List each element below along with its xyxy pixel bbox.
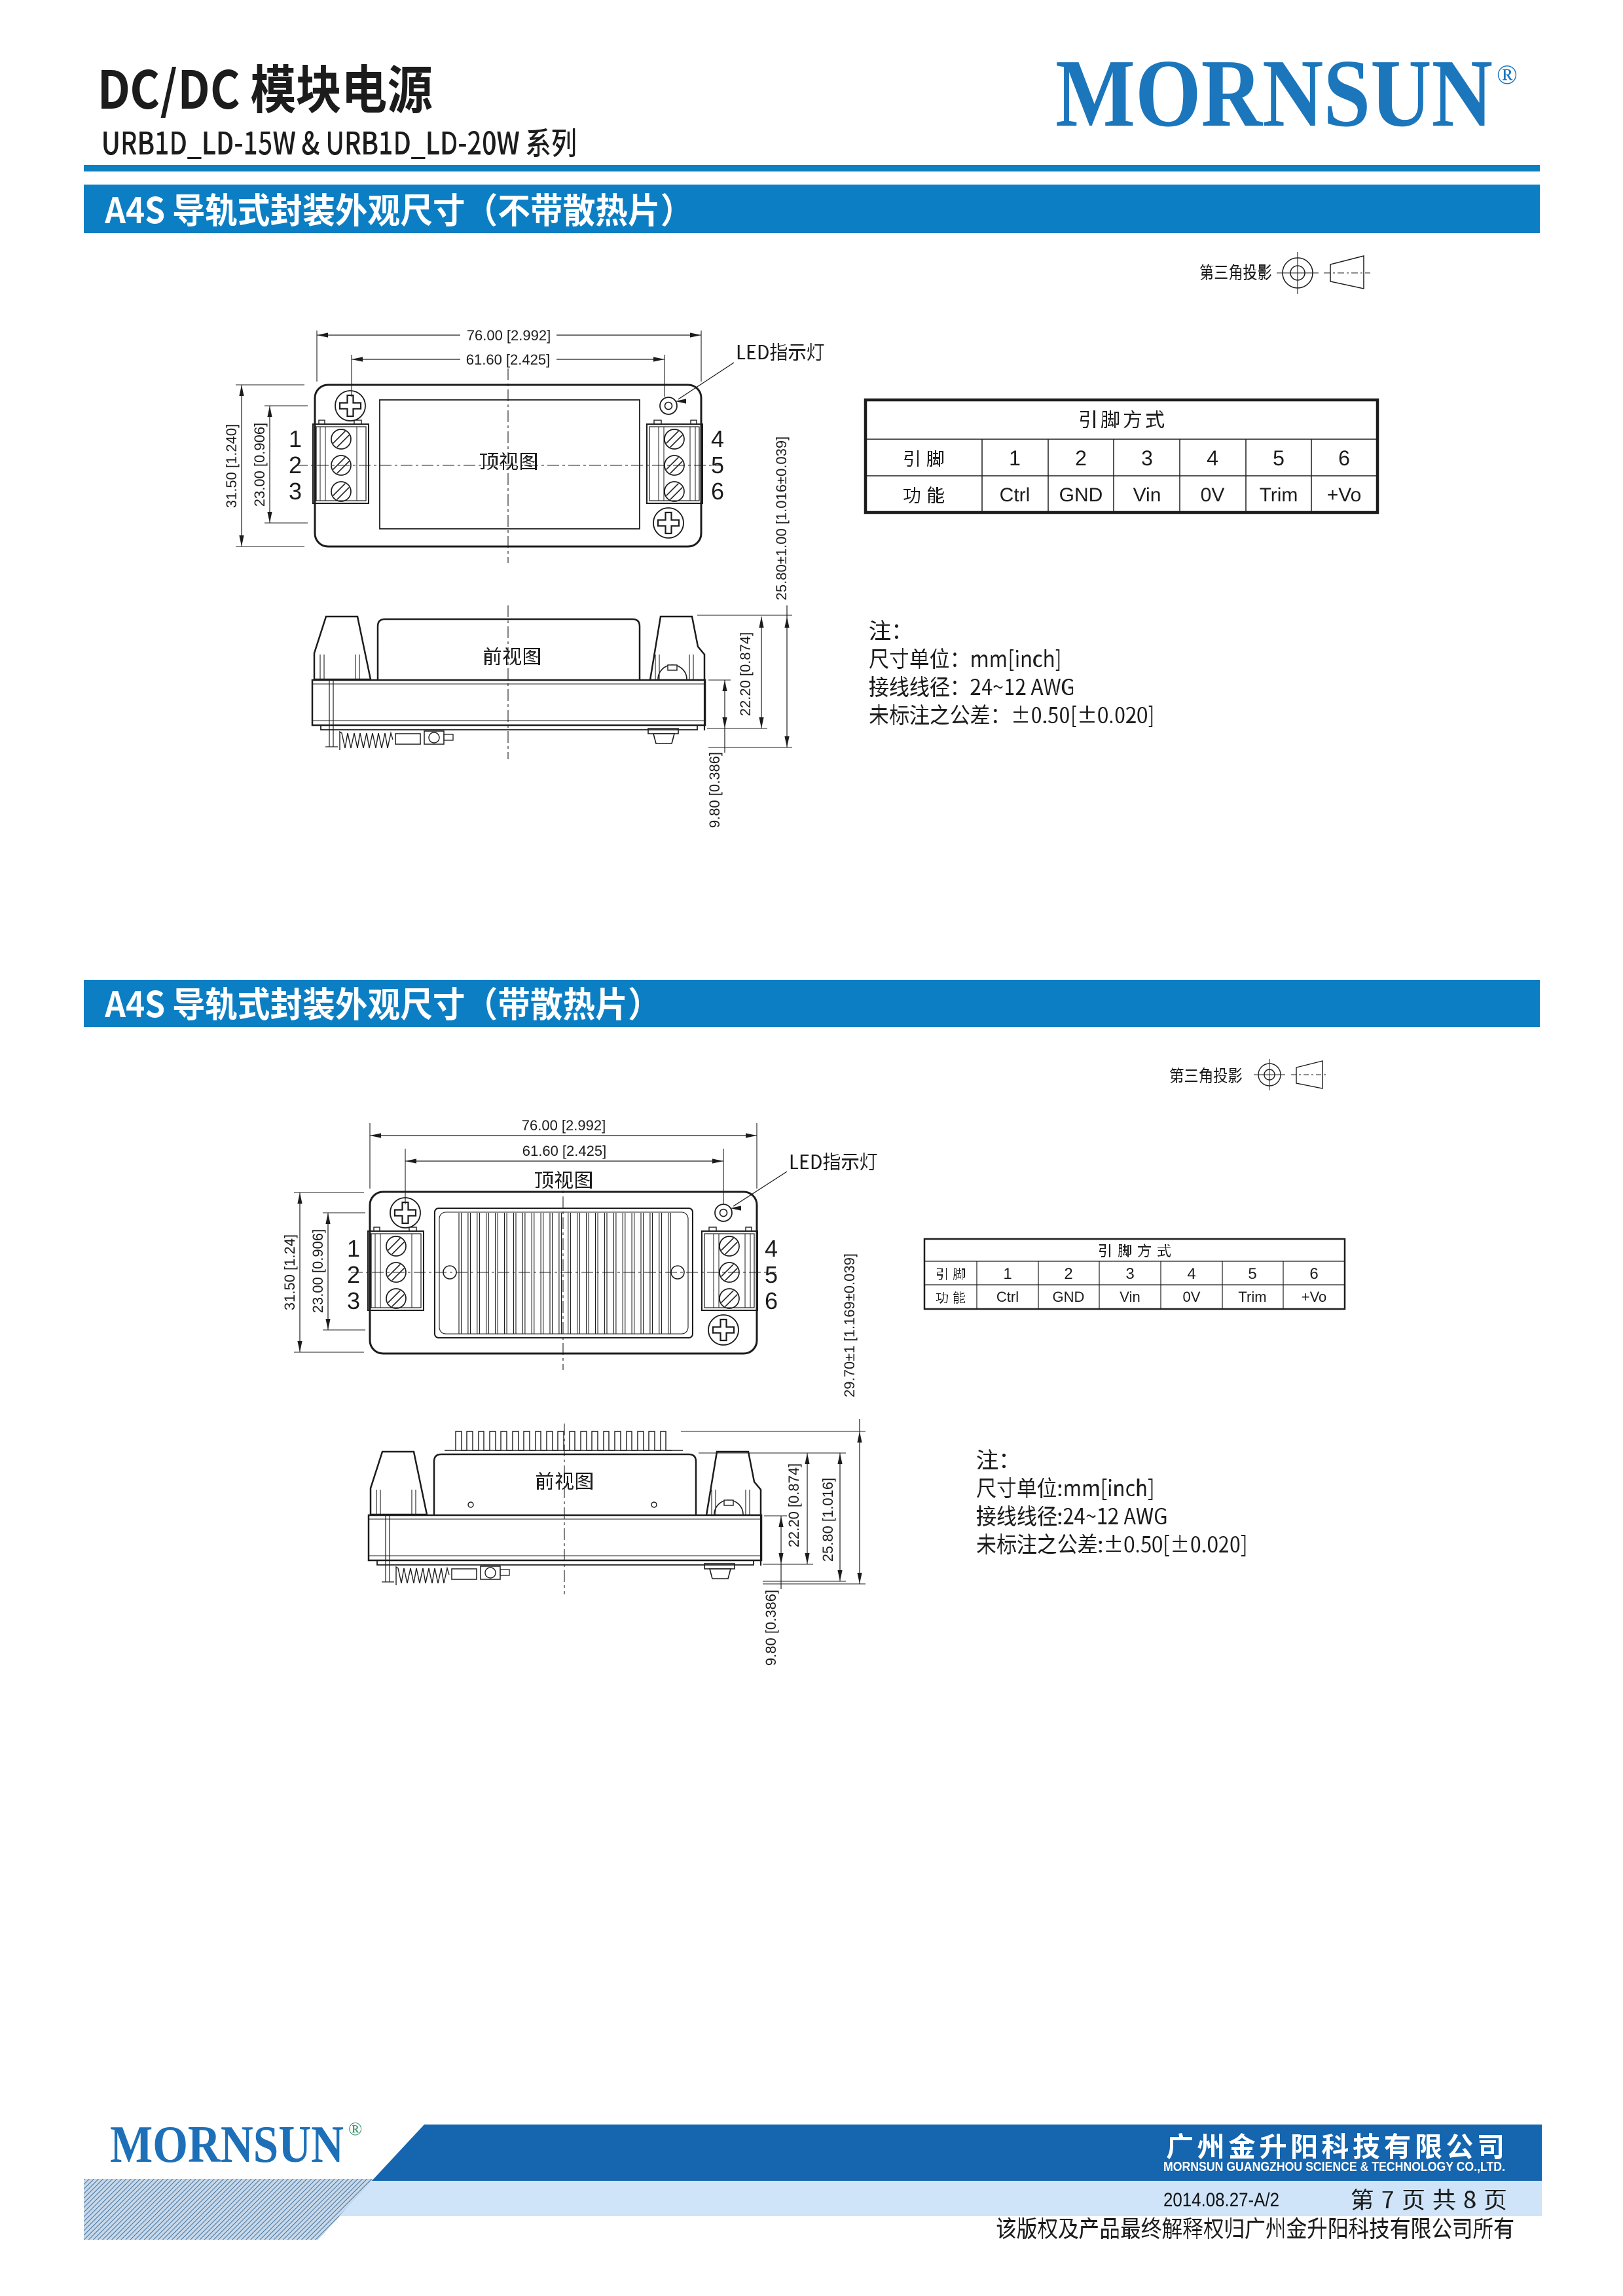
svg-text:0V: 0V [1183, 1289, 1201, 1305]
svg-text:2014.08.27-A/2: 2014.08.27-A/2 [1163, 2189, 1279, 2211]
svg-text:2: 2 [1075, 446, 1087, 470]
svg-text:25.80 [1.016]: 25.80 [1.016] [820, 1478, 836, 1562]
svg-text:1: 1 [347, 1235, 360, 1262]
svg-text:31.50 [1.240]: 31.50 [1.240] [223, 424, 240, 508]
svg-text:1: 1 [1003, 1265, 1012, 1283]
svg-text:22.20 [0.874]: 22.20 [0.874] [786, 1463, 802, 1547]
svg-text:31.50 [1.24]: 31.50 [1.24] [282, 1234, 298, 1310]
svg-text:6: 6 [711, 478, 724, 505]
svg-text:MORNSUN: MORNSUN [1055, 40, 1493, 147]
svg-text:9.80 [0.386]: 9.80 [0.386] [706, 752, 723, 828]
svg-text:®: ® [348, 2119, 362, 2140]
svg-text:0V: 0V [1201, 484, 1225, 506]
svg-text:29.70±1 [1.169±0.039]: 29.70±1 [1.169±0.039] [841, 1253, 858, 1397]
svg-text:Vin: Vin [1133, 484, 1161, 506]
svg-text:Ctrl: Ctrl [996, 1289, 1019, 1305]
svg-text:+Vo: +Vo [1302, 1289, 1327, 1305]
svg-text:25.80±1.00 [1.016±0.039]: 25.80±1.00 [1.016±0.039] [773, 437, 790, 600]
svg-text:GND: GND [1059, 484, 1103, 506]
svg-text:6: 6 [1338, 446, 1350, 470]
svg-text:5: 5 [1248, 1265, 1256, 1283]
svg-text:2: 2 [1064, 1265, 1072, 1283]
svg-text:61.60 [2.425]: 61.60 [2.425] [466, 351, 550, 368]
svg-text:Ctrl: Ctrl [1000, 484, 1030, 506]
svg-text:6: 6 [765, 1287, 778, 1314]
svg-text:3: 3 [1141, 446, 1153, 470]
svg-text:22.20 [0.874]: 22.20 [0.874] [737, 632, 754, 716]
svg-text:6: 6 [1309, 1265, 1318, 1283]
svg-text:4: 4 [765, 1235, 778, 1262]
svg-text:4: 4 [711, 425, 724, 452]
svg-text:+Vo: +Vo [1327, 484, 1362, 506]
svg-text:5: 5 [711, 452, 724, 478]
svg-text:9.80 [0.386]: 9.80 [0.386] [763, 1590, 779, 1666]
svg-text:61.60 [2.425]: 61.60 [2.425] [522, 1143, 606, 1159]
svg-text:1: 1 [289, 425, 302, 452]
svg-text:Trim: Trim [1260, 484, 1298, 506]
svg-text:3: 3 [289, 478, 302, 505]
svg-text:1: 1 [1009, 446, 1021, 470]
svg-text:GND: GND [1053, 1289, 1085, 1305]
svg-text:Vin: Vin [1120, 1289, 1140, 1305]
svg-text:76.00 [2.992]: 76.00 [2.992] [467, 327, 551, 344]
svg-text:Trim: Trim [1238, 1289, 1266, 1305]
svg-text:5: 5 [1273, 446, 1285, 470]
svg-text:MORNSUN GUANGZHOU SCIENCE & TE: MORNSUN GUANGZHOU SCIENCE & TECHNOLOGY C… [1163, 2160, 1505, 2174]
svg-text:5: 5 [765, 1261, 778, 1288]
svg-text:23.00 [0.906]: 23.00 [0.906] [310, 1229, 326, 1313]
svg-text:MORNSUN: MORNSUN [110, 2116, 344, 2174]
svg-text:4: 4 [1207, 446, 1218, 470]
svg-text:4: 4 [1187, 1265, 1195, 1283]
svg-text:76.00 [2.992]: 76.00 [2.992] [522, 1117, 606, 1134]
svg-text:23.00 [0.906]: 23.00 [0.906] [251, 423, 268, 507]
svg-text:2: 2 [289, 452, 302, 478]
svg-text:3: 3 [347, 1287, 360, 1314]
svg-text:3: 3 [1125, 1265, 1134, 1283]
svg-text:®: ® [1497, 60, 1518, 90]
svg-text:2: 2 [347, 1261, 360, 1288]
